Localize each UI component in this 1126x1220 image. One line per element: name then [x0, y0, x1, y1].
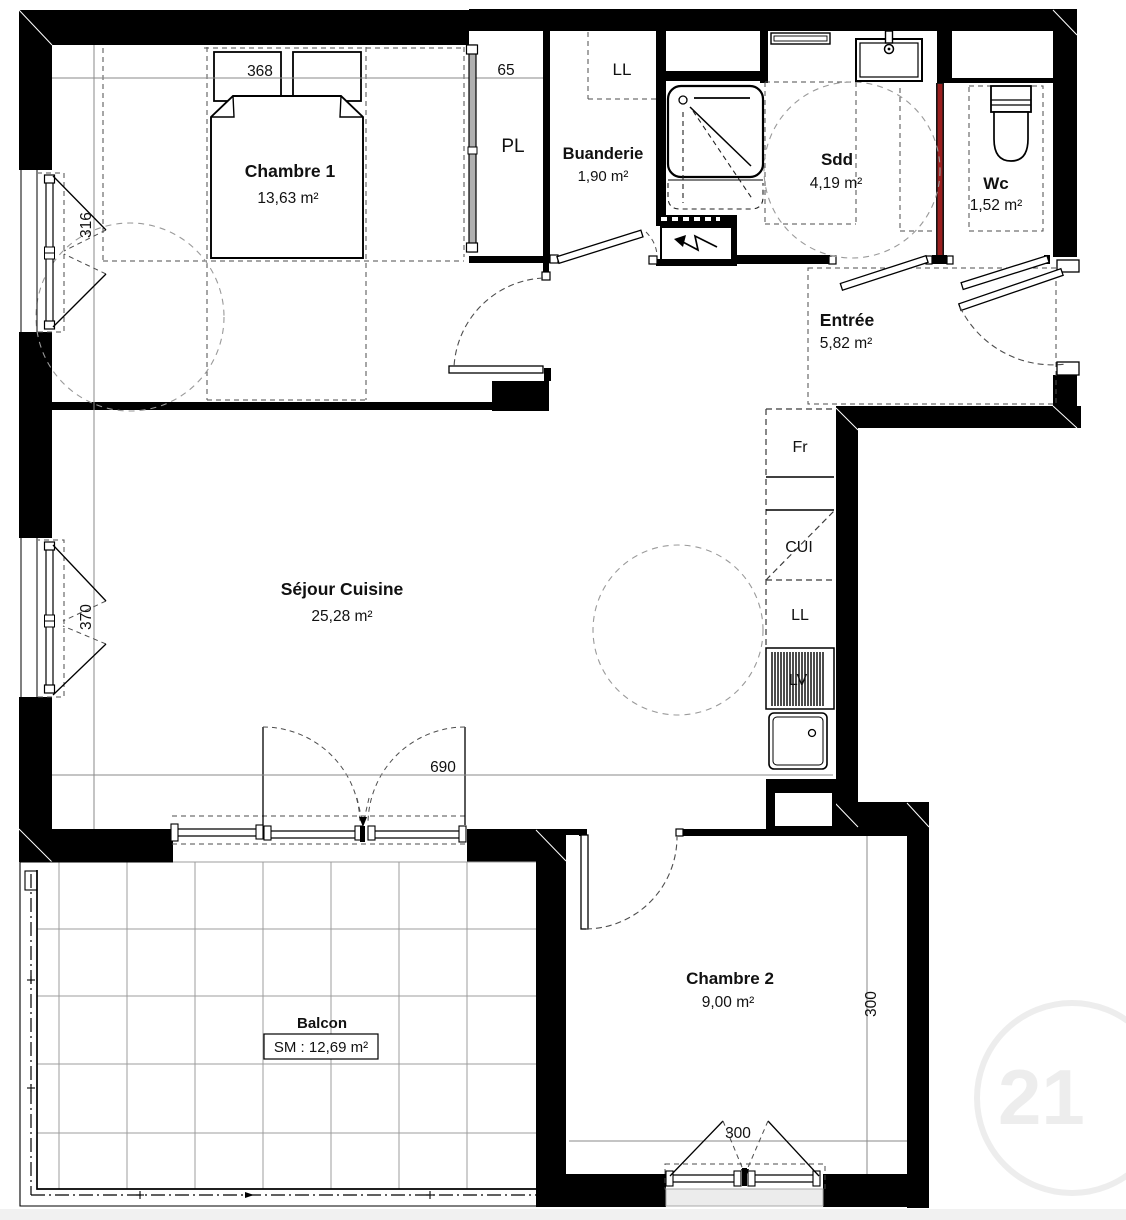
svg-text:Wc: Wc — [983, 174, 1009, 193]
svg-text:LV: LV — [789, 672, 808, 689]
svg-text:Séjour Cuisine: Séjour Cuisine — [281, 579, 404, 599]
svg-text:25,28 m²: 25,28 m² — [311, 608, 372, 625]
svg-text:Fr: Fr — [792, 439, 808, 456]
svg-text:9,00 m²: 9,00 m² — [702, 994, 755, 1011]
svg-text:CUI: CUI — [785, 539, 813, 556]
svg-text:370: 370 — [78, 604, 95, 630]
svg-text:Chambre 1: Chambre 1 — [245, 161, 336, 181]
svg-text:316: 316 — [78, 212, 95, 238]
svg-text:13,63 m²: 13,63 m² — [257, 190, 318, 207]
svg-text:SM : 12,69 m²: SM : 12,69 m² — [274, 1039, 368, 1056]
svg-text:368: 368 — [247, 63, 273, 80]
svg-text:65: 65 — [497, 62, 514, 79]
svg-text:Buanderie: Buanderie — [563, 145, 644, 163]
svg-text:690: 690 — [430, 759, 456, 776]
svg-text:PL: PL — [501, 136, 524, 157]
svg-text:Entrée: Entrée — [820, 310, 875, 330]
svg-text:Sdd: Sdd — [821, 150, 853, 169]
svg-text:LL: LL — [791, 607, 809, 624]
svg-text:LL: LL — [613, 60, 632, 79]
svg-text:Chambre 2: Chambre 2 — [686, 969, 774, 988]
svg-text:300: 300 — [863, 991, 880, 1017]
svg-text:Balcon: Balcon — [297, 1015, 347, 1032]
svg-text:1,90 m²: 1,90 m² — [578, 168, 629, 185]
svg-text:1,52 m²: 1,52 m² — [970, 197, 1023, 214]
svg-text:4,19 m²: 4,19 m² — [810, 175, 863, 192]
svg-text:300: 300 — [725, 1125, 751, 1142]
svg-text:21: 21 — [998, 1053, 1085, 1141]
svg-text:5,82 m²: 5,82 m² — [820, 335, 873, 352]
